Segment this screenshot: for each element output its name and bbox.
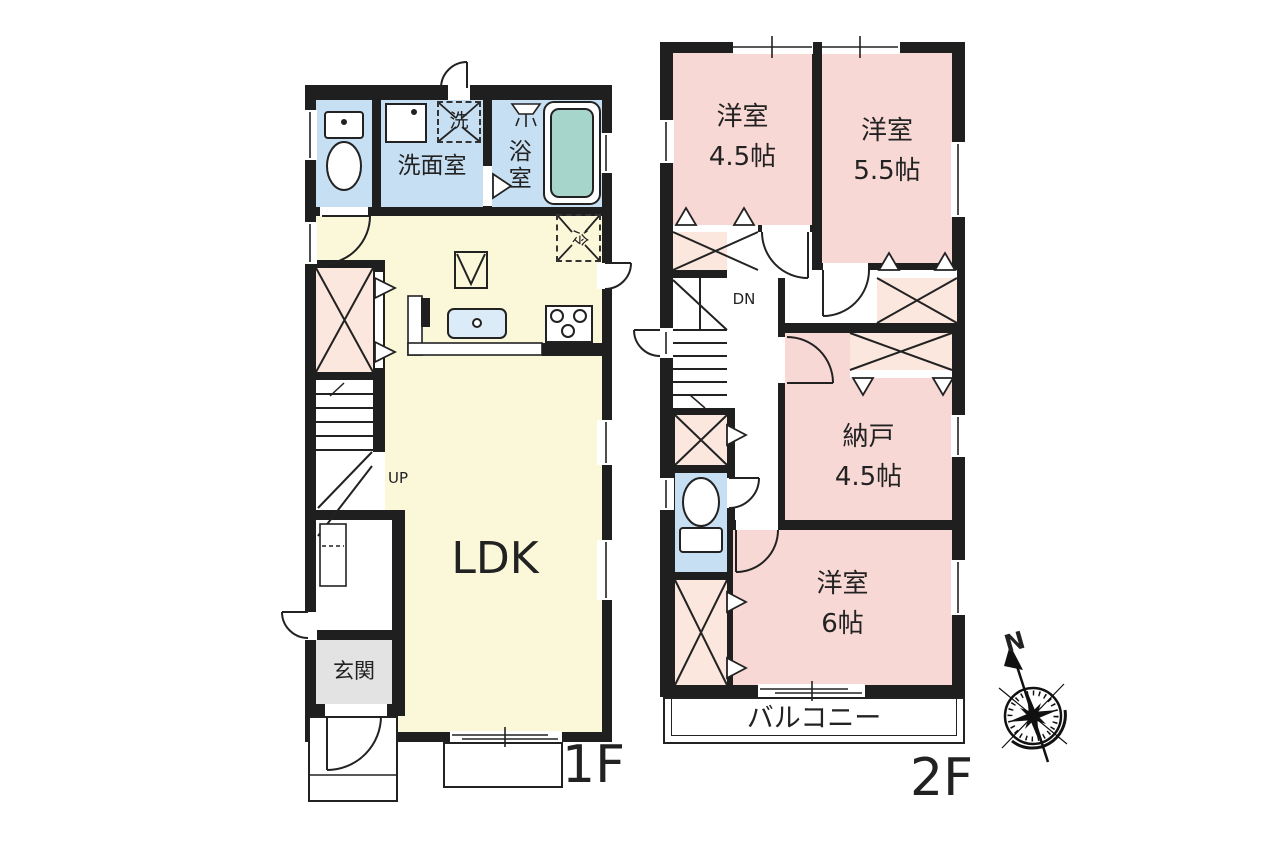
- bedroom55-label: 洋室: [822, 112, 952, 152]
- closet-x-pattern: [673, 232, 758, 270]
- bedroom45-size: 4.5帖: [673, 138, 812, 178]
- storage-label: 納戸: [785, 418, 952, 458]
- stairs-up-label: UP: [380, 468, 416, 490]
- door-arc-toilet-1f: [322, 216, 370, 264]
- door-arc-stair-window: [634, 330, 660, 356]
- closet-x-pattern: [316, 268, 373, 372]
- door-arc-bedroom45: [762, 232, 808, 278]
- door-arc-entrance: [327, 716, 381, 770]
- door-arc-toilet-2f: [729, 478, 759, 508]
- bedroom55-size: 5.5帖: [822, 152, 952, 192]
- bathroom-label: 浴室: [502, 126, 532, 206]
- closet-x-pattern: [675, 415, 727, 465]
- bedroom6-size: 6帖: [733, 605, 952, 645]
- entrance-label: 玄関: [316, 650, 392, 692]
- door-arc-top-entry: [441, 62, 467, 88]
- door-arc-kitchen-back: [605, 263, 631, 289]
- vent-symbol: [455, 252, 487, 288]
- compass-rose: [999, 645, 1067, 762]
- door-arc-storage: [787, 337, 833, 383]
- shoe-cabinet: [320, 524, 346, 586]
- stairs-1f-treads: [316, 383, 373, 536]
- floor1-label: 1F: [540, 735, 625, 797]
- washroom-label: 洗面室: [381, 148, 483, 184]
- washbasin: [386, 104, 426, 142]
- laundry-symbol: 洗: [437, 107, 481, 137]
- door-arc-bedroom55: [823, 270, 869, 316]
- plan-linework: [0, 0, 1280, 853]
- floor2-label: 2F: [888, 748, 973, 810]
- bathtub: [544, 102, 600, 204]
- fridge-symbol: 冷: [562, 218, 594, 258]
- stove: [546, 306, 592, 342]
- toilet-fixture-2f: [680, 478, 722, 552]
- toilet-fixture-1f: [325, 112, 363, 190]
- storage-size: 4.5帖: [785, 458, 952, 498]
- bedroom6-label: 洋室: [733, 565, 952, 605]
- shower-fixture: [512, 104, 540, 127]
- ldk-label: LDK: [430, 532, 560, 586]
- closet-x-pattern: [675, 580, 727, 685]
- kitchen-sink: [448, 309, 506, 338]
- bedroom45-label: 洋室: [673, 98, 812, 138]
- closet-x-pattern: [850, 333, 952, 370]
- door-arc-side-left: [282, 612, 308, 638]
- stairs-2f-treads: [673, 278, 727, 408]
- stairs-dn-label: DN: [727, 290, 761, 310]
- balcony-label: バルコニー: [663, 700, 965, 738]
- floor-plan-canvas: 洗面室 浴室 洗 冷 LDK 玄関 UP 1F 洋室 4.5帖 洋室 5.5帖 …: [0, 0, 1280, 853]
- closet-x-pattern: [877, 278, 957, 323]
